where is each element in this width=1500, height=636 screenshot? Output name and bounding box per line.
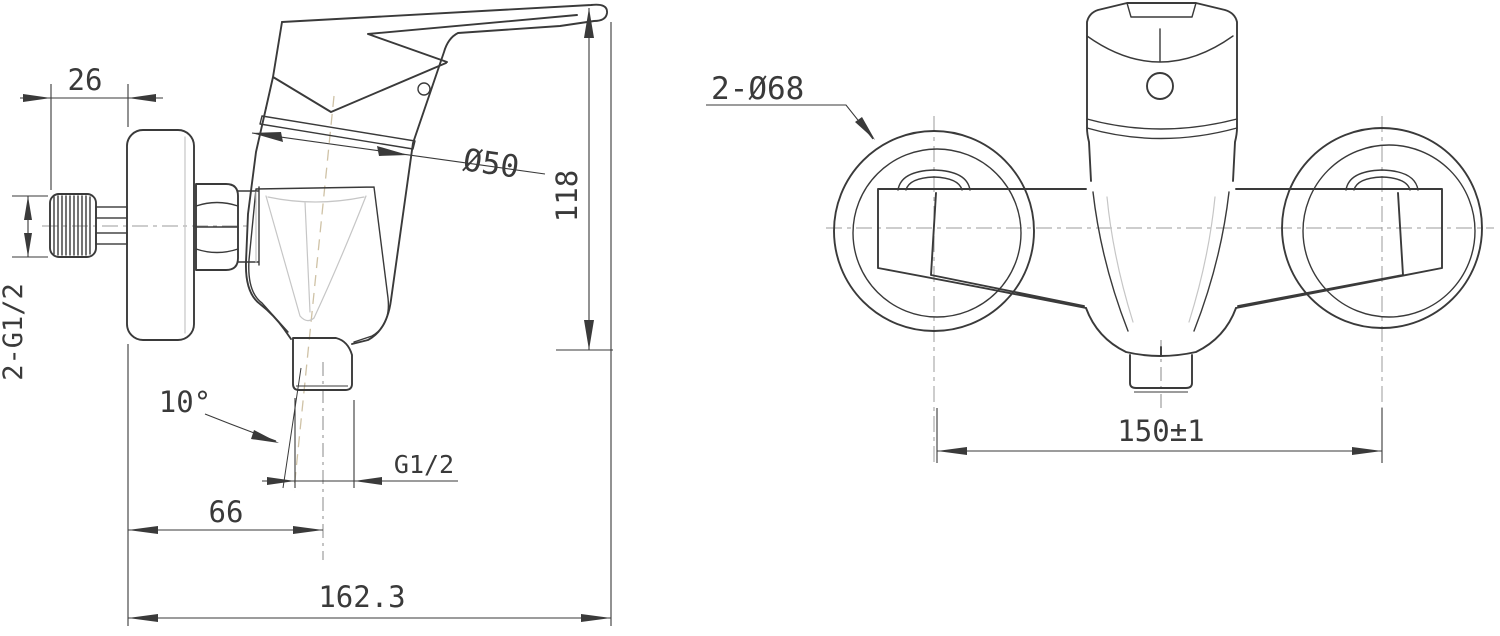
- arrowhead: [267, 477, 295, 485]
- arrowhead: [128, 526, 158, 534]
- dim-label-d50: Ø50: [461, 142, 521, 185]
- dim-label-162-3: 162.3: [318, 580, 405, 614]
- arrowhead: [1352, 447, 1382, 455]
- handle-collar-rings: [1087, 119, 1237, 139]
- body-wing-edges: [1093, 192, 1229, 331]
- handle-cylinder: [1087, 3, 1237, 181]
- dim-label-26: 26: [68, 63, 103, 97]
- arrowhead: [252, 132, 283, 142]
- arrowhead: [128, 94, 156, 102]
- arrowhead: [23, 94, 51, 102]
- body-tilted-axis: [294, 96, 334, 490]
- dim-label-150: 150±1: [1117, 414, 1204, 448]
- valve-stem-lower: [96, 233, 127, 244]
- wall-plate: [127, 130, 194, 340]
- hex-nut-facets: [196, 203, 238, 253]
- arrowhead: [128, 614, 158, 622]
- body-bottom-bowl: [1086, 308, 1236, 356]
- handle-cap-facets: [1087, 3, 1233, 62]
- valve-stem-upper: [96, 207, 127, 218]
- dim-label-118: 118: [550, 170, 584, 222]
- dim-label-10deg: 10°: [159, 385, 211, 419]
- inlet-boss-arcs: [898, 170, 1418, 190]
- dim-outlet-thread: G1/2: [262, 398, 458, 488]
- dim-label-66: 66: [209, 495, 244, 529]
- dim-knob-to-wall: 26: [20, 63, 163, 190]
- handle-set-screw-hole: [1147, 73, 1173, 99]
- arrowhead: [251, 430, 279, 443]
- dim-cartridge-diameter: Ø50: [252, 132, 545, 186]
- arrowhead: [937, 447, 967, 455]
- arrowhead: [581, 614, 611, 622]
- dim-outlet-angle: 10°: [159, 385, 279, 443]
- arrowhead: [354, 477, 382, 485]
- dim-inlet-thread: 2-G1/2: [0, 196, 48, 381]
- dim-height: 118: [550, 8, 613, 350]
- dim-inlet-centres: 150±1: [937, 408, 1382, 463]
- dim-escutcheon-diameter: 2-Ø68: [706, 71, 875, 140]
- inlet-pipe-right: [1236, 189, 1442, 308]
- cartridge-collar: [260, 116, 415, 149]
- arrowhead: [584, 320, 594, 350]
- technical-drawing-canvas: 26 2-G1/2 Ø50 118 10°: [0, 0, 1500, 636]
- arrowhead: [24, 196, 32, 220]
- arrowhead: [855, 117, 875, 140]
- body-screw-boss: [418, 83, 430, 95]
- dim-label-2-g12: 2-G1/2: [0, 283, 29, 381]
- arrowhead: [293, 526, 323, 534]
- mixer-tap-dimension-drawing: 26 2-G1/2 Ø50 118 10°: [0, 0, 1500, 636]
- front-view: 150±1 2-Ø68: [706, 3, 1494, 464]
- dim-overall-depth: 162.3: [128, 22, 611, 626]
- spout-interior-construction-lines: [256, 192, 366, 321]
- dim-wall-to-outlet: 66: [128, 495, 323, 534]
- arrowhead: [24, 233, 32, 257]
- handle-dome: [266, 15, 577, 112]
- dim-label-g12: G1/2: [394, 450, 454, 479]
- side-view: 26 2-G1/2 Ø50 118 10°: [0, 5, 613, 626]
- dim-label-2-d68: 2-Ø68: [711, 71, 804, 107]
- inlet-pipe-left: [878, 189, 1086, 308]
- body-wing-construction: [1107, 197, 1215, 322]
